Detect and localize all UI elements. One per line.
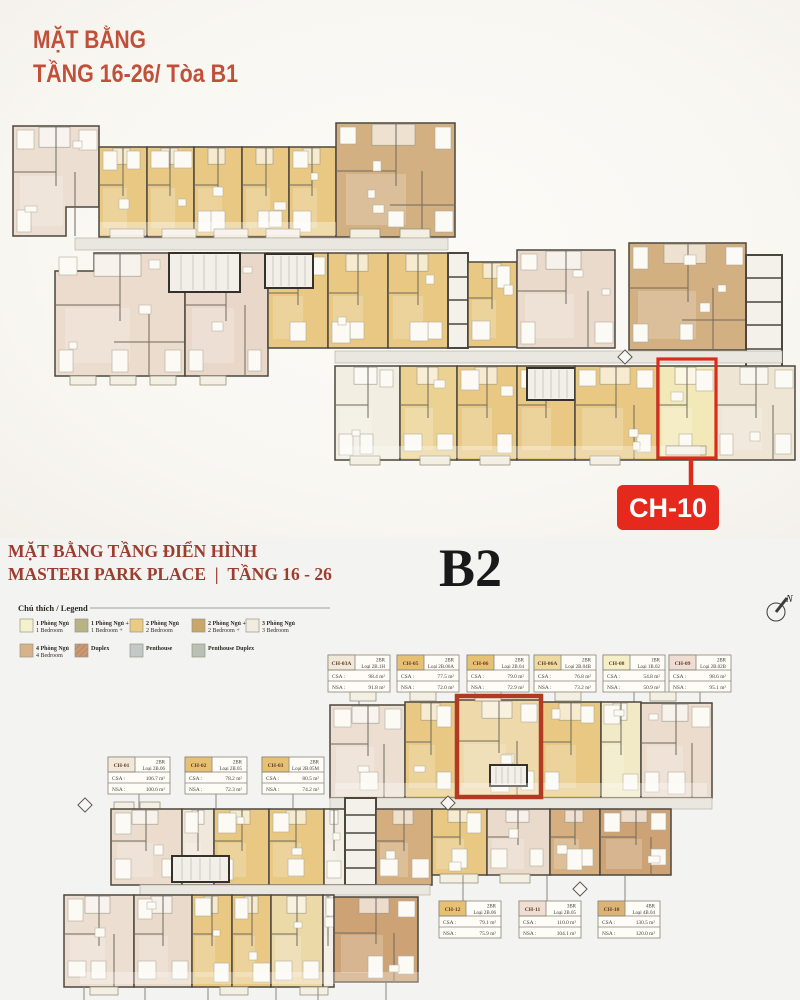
svg-text:50.9 m²: 50.9 m² [643, 685, 660, 691]
svg-text:NSA :: NSA : [607, 685, 621, 691]
svg-text:Penthouse: Penthouse [146, 646, 173, 652]
svg-text:3 Bedroom: 3 Bedroom [262, 628, 289, 634]
svg-text:120.0 m²: 120.0 m² [636, 931, 656, 937]
svg-text:2BR: 2BR [582, 659, 592, 664]
svg-text:CSA :: CSA : [189, 776, 203, 782]
svg-text:75.9 m²: 75.9 m² [479, 931, 496, 937]
svg-text:1 Phòng Ngủ: 1 Phòng Ngủ [36, 621, 70, 627]
svg-text:CH-10: CH-10 [629, 493, 707, 523]
svg-text:4 Bedroom: 4 Bedroom [36, 653, 63, 659]
svg-text:CH-11: CH-11 [525, 907, 541, 913]
svg-text:B2: B2 [439, 538, 502, 598]
svg-text:Loại 2B.02B: Loại 2B.02B [700, 665, 726, 670]
svg-text:2 Phòng Ngủ: 2 Phòng Ngủ [146, 621, 180, 627]
svg-text:77.5 m²: 77.5 m² [437, 674, 454, 680]
svg-text:CSA :: CSA : [673, 674, 687, 680]
svg-text:CSA :: CSA : [607, 674, 621, 680]
svg-text:Loại 2B.05: Loại 2B.05 [220, 767, 243, 772]
svg-text:CSA :: CSA : [523, 920, 537, 926]
svg-text:Loại 2B.05M: Loại 2B.05M [292, 767, 319, 772]
svg-text:MẶT BẰNG TẦNG ĐIỂN HÌNH: MẶT BẰNG TẦNG ĐIỂN HÌNH [8, 541, 258, 561]
svg-text:91.8 m²: 91.8 m² [368, 685, 385, 691]
svg-text:Loại 2B.04B: Loại 2B.04B [565, 665, 591, 670]
svg-text:74.2 m²: 74.2 m² [302, 787, 319, 793]
svg-text:CH-06: CH-06 [473, 661, 489, 667]
svg-text:CH-12: CH-12 [445, 907, 461, 913]
svg-text:CH-09: CH-09 [675, 661, 691, 667]
svg-text:2BR: 2BR [487, 905, 497, 910]
svg-text:106.7 m²: 106.7 m² [146, 776, 166, 782]
svg-text:NSA :: NSA : [443, 931, 457, 937]
svg-text:4BR: 4BR [646, 905, 656, 910]
svg-text:1BR: 1BR [651, 659, 661, 664]
svg-text:CH-01: CH-01 [114, 763, 130, 769]
svg-text:CH-05: CH-05 [403, 661, 419, 667]
svg-text:Loại 1B.02: Loại 1B.02 [638, 665, 661, 670]
svg-text:CSA :: CSA : [112, 776, 126, 782]
svg-text:CSA :: CSA : [471, 674, 485, 680]
svg-text:98.4 m²: 98.4 m² [368, 674, 385, 680]
svg-text:TẦNG 16-26/ Tòa B1: TẦNG 16-26/ Tòa B1 [33, 59, 238, 88]
svg-text:2BR: 2BR [717, 659, 727, 664]
svg-text:NSA :: NSA : [266, 787, 280, 793]
svg-text:3BR: 3BR [567, 905, 577, 910]
svg-text:CH-10: CH-10 [604, 907, 620, 913]
svg-text:1 Bedroom +: 1 Bedroom + [91, 628, 123, 634]
svg-text:N: N [785, 594, 794, 605]
svg-text:Loại 2B.1H: Loại 2B.1H [361, 665, 385, 670]
svg-text:2BR: 2BR [445, 659, 455, 664]
svg-text:CH-02: CH-02 [191, 763, 207, 769]
svg-text:CSA :: CSA : [443, 920, 457, 926]
svg-text:Loại 4B.04: Loại 4B.04 [633, 911, 656, 916]
svg-text:NSA :: NSA : [401, 685, 415, 691]
svg-text:Loại 2B.05: Loại 2B.05 [554, 911, 577, 916]
svg-text:2BR: 2BR [233, 761, 243, 766]
svg-text:NSA :: NSA : [112, 787, 126, 793]
svg-text:2BR: 2BR [376, 659, 386, 664]
svg-text:104.1 m²: 104.1 m² [557, 931, 577, 937]
svg-text:79.0 m²: 79.0 m² [507, 674, 524, 680]
svg-text:79.1 m²: 79.1 m² [479, 920, 496, 926]
svg-text:Loại 2B.06: Loại 2B.06 [143, 767, 166, 772]
svg-text:130.5 m²: 130.5 m² [636, 920, 656, 926]
svg-text:Loại 2B.06: Loại 2B.06 [474, 911, 497, 916]
svg-text:2 Phòng Ngủ +: 2 Phòng Ngủ + [208, 621, 247, 627]
svg-text:Chú thích / Legend: Chú thích / Legend [18, 603, 88, 613]
svg-text:MASTERI PARK PLACE | TẦNG 16: MASTERI PARK PLACE | TẦNG 16 - 26 [8, 564, 332, 584]
svg-text:MẶT BẰNG: MẶT BẰNG [33, 25, 146, 54]
svg-text:4 Phòng Ngủ: 4 Phòng Ngủ [36, 646, 70, 652]
svg-text:NSA :: NSA : [673, 685, 687, 691]
svg-text:78.2 m²: 78.2 m² [225, 776, 242, 782]
svg-text:2 Bedroom +: 2 Bedroom + [208, 628, 240, 634]
svg-text:NSA :: NSA : [189, 787, 203, 793]
svg-text:Penthouse Duplex: Penthouse Duplex [208, 646, 254, 652]
svg-text:CH-06A: CH-06A [538, 661, 558, 667]
svg-text:98.6 m²: 98.6 m² [709, 674, 726, 680]
svg-text:54.8 m²: 54.8 m² [643, 674, 660, 680]
svg-text:95.1 m²: 95.1 m² [709, 685, 726, 691]
svg-text:1 Phòng Ngủ +: 1 Phòng Ngủ + [91, 621, 130, 627]
svg-text:1 Bedroom: 1 Bedroom [36, 628, 63, 634]
svg-text:2BR: 2BR [156, 761, 166, 766]
svg-text:73.2 m²: 73.2 m² [574, 685, 591, 691]
svg-text:CH-03: CH-03 [268, 763, 284, 769]
svg-text:CSA :: CSA : [538, 674, 552, 680]
svg-text:Loại 2B.06A: Loại 2B.06A [428, 665, 454, 670]
svg-text:CSA :: CSA : [401, 674, 415, 680]
svg-text:100.6 m²: 100.6 m² [146, 787, 166, 793]
svg-text:CSA :: CSA : [332, 674, 346, 680]
svg-text:NSA :: NSA : [332, 685, 346, 691]
svg-text:2BR: 2BR [515, 659, 525, 664]
svg-text:NSA :: NSA : [602, 931, 616, 937]
svg-text:76.8 m²: 76.8 m² [574, 674, 591, 680]
svg-text:110.0 m²: 110.0 m² [557, 920, 576, 926]
svg-text:2 Bedroom: 2 Bedroom [146, 628, 173, 634]
svg-text:CSA :: CSA : [602, 920, 616, 926]
svg-text:Duplex: Duplex [91, 646, 109, 652]
svg-text:CSA :: CSA : [266, 776, 280, 782]
svg-text:72.9 m²: 72.9 m² [507, 685, 524, 691]
svg-text:2BR: 2BR [310, 761, 320, 766]
svg-text:80.5 m²: 80.5 m² [302, 776, 319, 782]
svg-text:NSA :: NSA : [523, 931, 537, 937]
svg-text:3 Phòng Ngủ: 3 Phòng Ngủ [262, 621, 296, 627]
svg-text:72.0 m²: 72.0 m² [437, 685, 454, 691]
svg-text:NSA :: NSA : [471, 685, 485, 691]
svg-text:CH-08: CH-08 [609, 661, 625, 667]
svg-text:NSA :: NSA : [538, 685, 552, 691]
svg-text:CH-03A: CH-03A [332, 661, 352, 667]
svg-text:Loại 2B.04: Loại 2B.04 [502, 665, 525, 670]
svg-text:72.3 m²: 72.3 m² [225, 787, 242, 793]
